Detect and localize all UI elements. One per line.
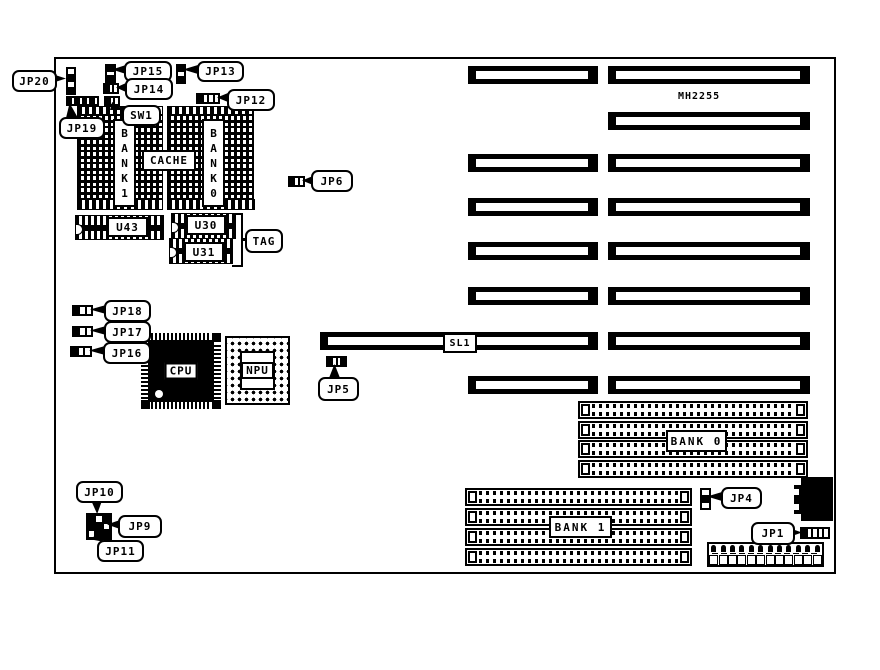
jp17-jumper [72,326,93,337]
bank1-label: BANK 1 [549,516,612,538]
tag-label: TAG [245,229,283,253]
cpu-pins-right [214,343,221,399]
isa-slot-right-3 [608,154,810,172]
cpu-pins-top [151,333,211,340]
isa-slot-right-5 [608,242,810,260]
isa-slot-right-6 [608,287,810,305]
cpu-corner [212,400,221,409]
jp10-label: JP10 [76,481,123,503]
simm-socket-bank0-1 [578,401,808,419]
isa-slot-left-6 [468,376,598,394]
isa-slot-right-4 [608,198,810,216]
jp1-jumper [800,527,830,539]
jp16-jumper [70,346,92,357]
simm-socket-bank0-4 [578,460,808,478]
isa-slot-left-5 [468,287,598,305]
bank0-label: BANK 0 [666,430,727,452]
jp15-jumper [105,64,116,83]
keyboard-connector [801,477,833,521]
jp12-jumper [196,93,220,104]
motherboard-diagram: MH2255 SL1 B A N K 1 B A N K 0 CACHE U43… [0,0,880,670]
power-bar [712,553,819,554]
sl1-label: SL1 [443,333,477,353]
cpu-pins-bottom [151,402,211,409]
jp5-label: JP5 [318,377,359,401]
jp16-label: JP16 [103,342,151,364]
jp11-label: JP11 [97,540,144,562]
jp12-label: JP12 [227,89,275,111]
jp13-jumper [176,64,186,84]
cpu-pin1-dot [155,390,163,398]
chip-notch [75,224,83,235]
jp6-label: JP6 [311,170,353,192]
cpu-corner [141,400,150,409]
isa-slot-right-8 [608,376,810,394]
isa-slot-left-2 [468,154,598,172]
simm-socket-bank1-1 [465,488,692,506]
jp20-jumper [66,67,76,95]
jp19-switch [66,96,99,106]
cpu-chip: CPU [141,333,221,409]
bank0-vertical-label: B A N K 0 [202,119,225,207]
jp14-jumper [103,83,119,94]
jp4-jumper [700,488,711,510]
chip-notch [169,247,177,258]
jp18-jumper [72,305,93,316]
npu-socket: NPU [225,336,290,405]
jp19-label: JP19 [59,117,105,139]
board-model-text: MH2255 [678,91,720,102]
isa-slot-left-4 [468,242,598,260]
npu-center: NPU [240,351,275,390]
sw1-label: SW1 [122,105,161,126]
simm-socket-bank1-4 [465,548,692,566]
keyboard-connector-flange [794,485,802,514]
jp17-label: JP17 [104,321,151,343]
cache-label: CACHE [142,150,196,171]
isa-slot-left-1 [468,66,598,84]
jp10-jumper-block [86,513,112,540]
jp6-jumper [288,176,305,187]
power-connector [707,542,824,567]
u31-label: U31 [184,242,224,262]
power-pins [709,545,822,552]
jp1-label: JP1 [751,522,795,545]
isa-slot-right-2 [608,112,810,130]
u43-label: U43 [107,217,148,237]
isa-slot-right-7 [608,332,810,350]
cpu-label: CPU [165,363,198,380]
bank1-vertical-label: B A N K 1 [113,119,136,207]
npu-label: NPU [241,362,274,379]
jp5-jumper [326,356,347,367]
power-sockets [709,555,822,565]
u30-label: U30 [186,215,226,235]
jp13-label: JP13 [197,61,244,82]
jp9-label: JP9 [118,515,162,538]
isa-slot-left-3 [468,198,598,216]
chip-notch [171,222,179,233]
jp14-label: JP14 [125,78,173,100]
cpu-corner [212,333,221,342]
jp4-label: JP4 [721,487,762,509]
isa-slot-right-1 [608,66,810,84]
jp18-label: JP18 [104,300,151,322]
jp20-label: JP20 [12,70,57,92]
